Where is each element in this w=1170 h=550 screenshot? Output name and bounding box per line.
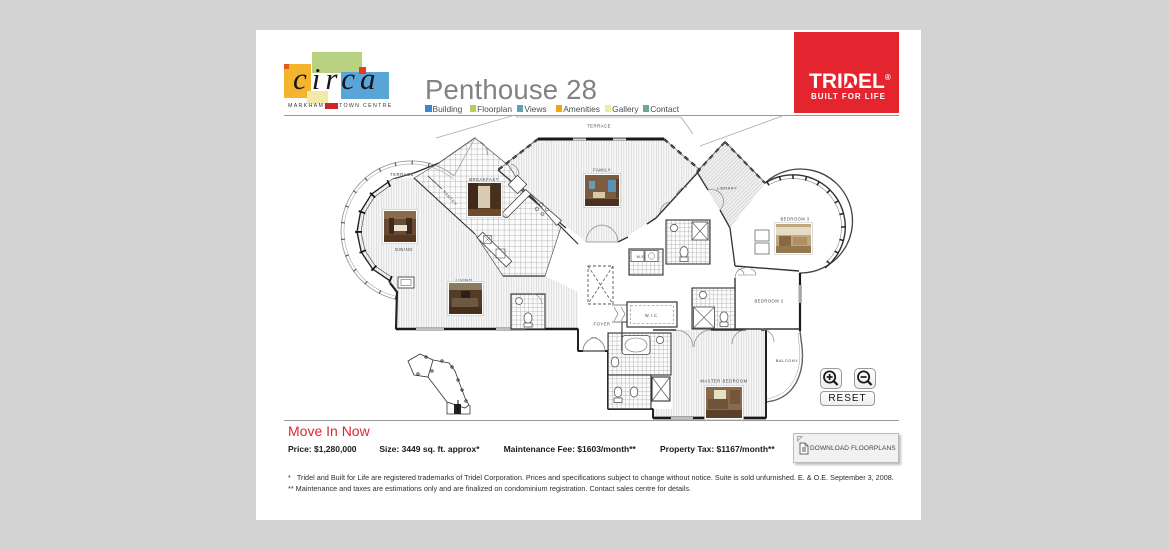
svg-text:LIBRARY: LIBRARY: [717, 186, 738, 191]
svg-text:BEDROOM 2: BEDROOM 2: [754, 299, 783, 304]
svg-text:W.I.C.: W.I.C.: [645, 313, 659, 318]
svg-text:BEDROOM 3: BEDROOM 3: [780, 217, 809, 222]
svg-text:MASTER BEDROOM: MASTER BEDROOM: [700, 379, 747, 384]
svg-text:FAMILY: FAMILY: [593, 168, 611, 173]
svg-text:FOYER: FOYER: [594, 322, 611, 327]
svg-text:TERRACE: TERRACE: [587, 124, 611, 129]
svg-text:DINING: DINING: [395, 247, 413, 252]
svg-text:TERRACE: TERRACE: [390, 172, 414, 177]
svg-text:BALCONY: BALCONY: [776, 358, 799, 363]
svg-text:W/D: W/D: [636, 254, 645, 259]
